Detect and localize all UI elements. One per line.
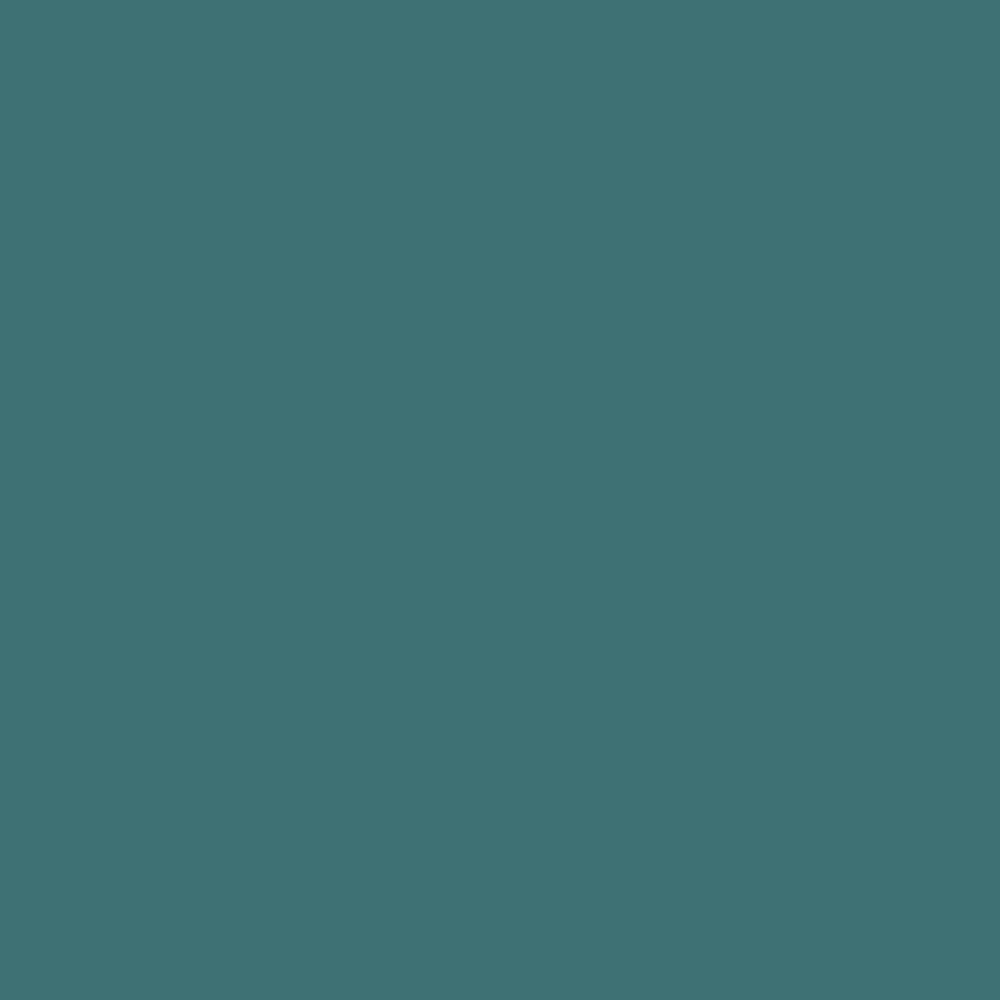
solid-color-background — [0, 0, 1000, 1000]
